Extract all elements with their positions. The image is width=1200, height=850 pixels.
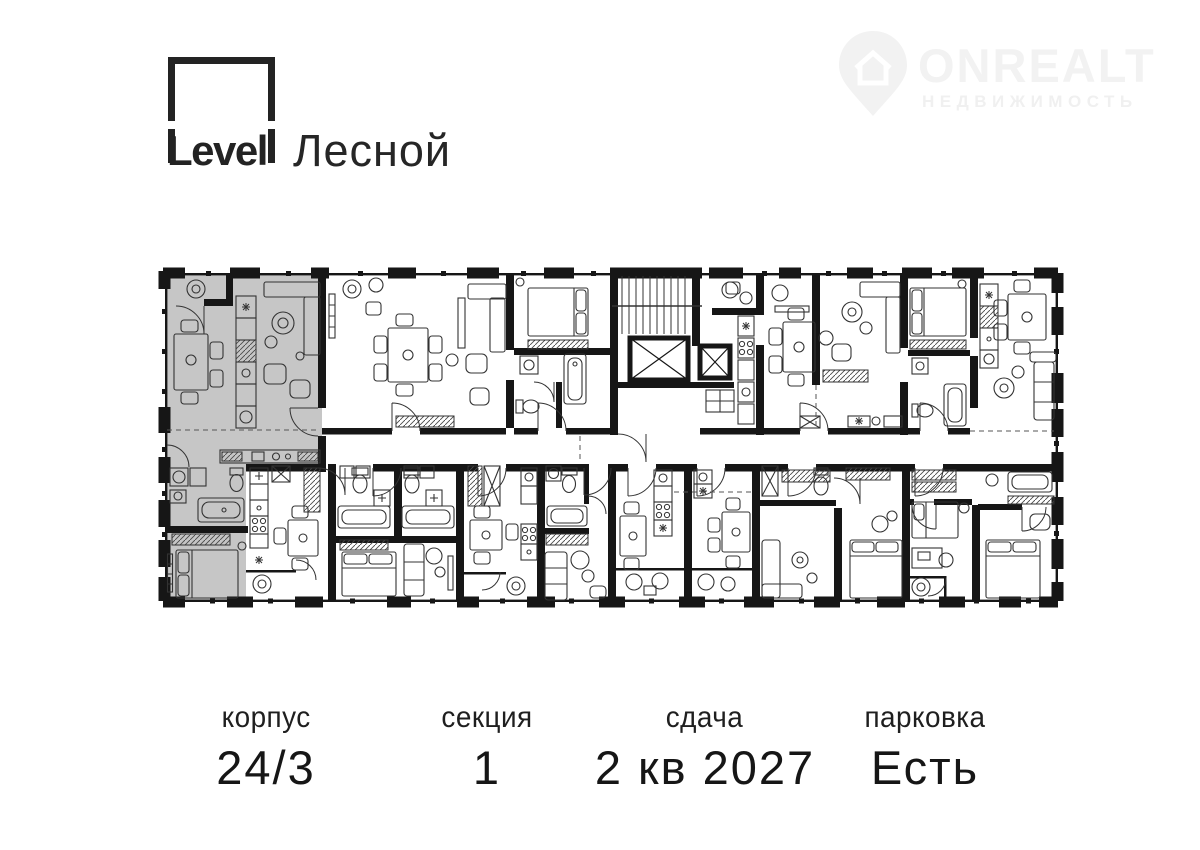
stat-parking-value: Есть [860, 740, 990, 795]
stat-section-value: 1 [438, 740, 536, 795]
stat-completion: сдача 2 кв 2027 [595, 701, 815, 795]
stat-building: корпус 24/3 [216, 701, 315, 795]
elevator-shafts [630, 338, 730, 380]
listing-floorplan-image: Level Лесной ONREALT НЕДВИЖИМОСТЬ [0, 0, 1200, 850]
stairwell [612, 276, 702, 334]
stat-parking: парковка Есть [860, 701, 990, 795]
highlighted-apartment [167, 274, 322, 600]
stat-building-value: 24/3 [216, 740, 315, 795]
stat-completion-label: сдача [666, 701, 744, 735]
stat-parking-label: парковка [864, 701, 985, 735]
stat-building-label: корпус [221, 701, 310, 735]
stat-section-label: секция [441, 701, 532, 735]
stat-completion-value: 2 кв 2027 [595, 740, 815, 795]
stat-section: секция 1 [438, 701, 536, 795]
